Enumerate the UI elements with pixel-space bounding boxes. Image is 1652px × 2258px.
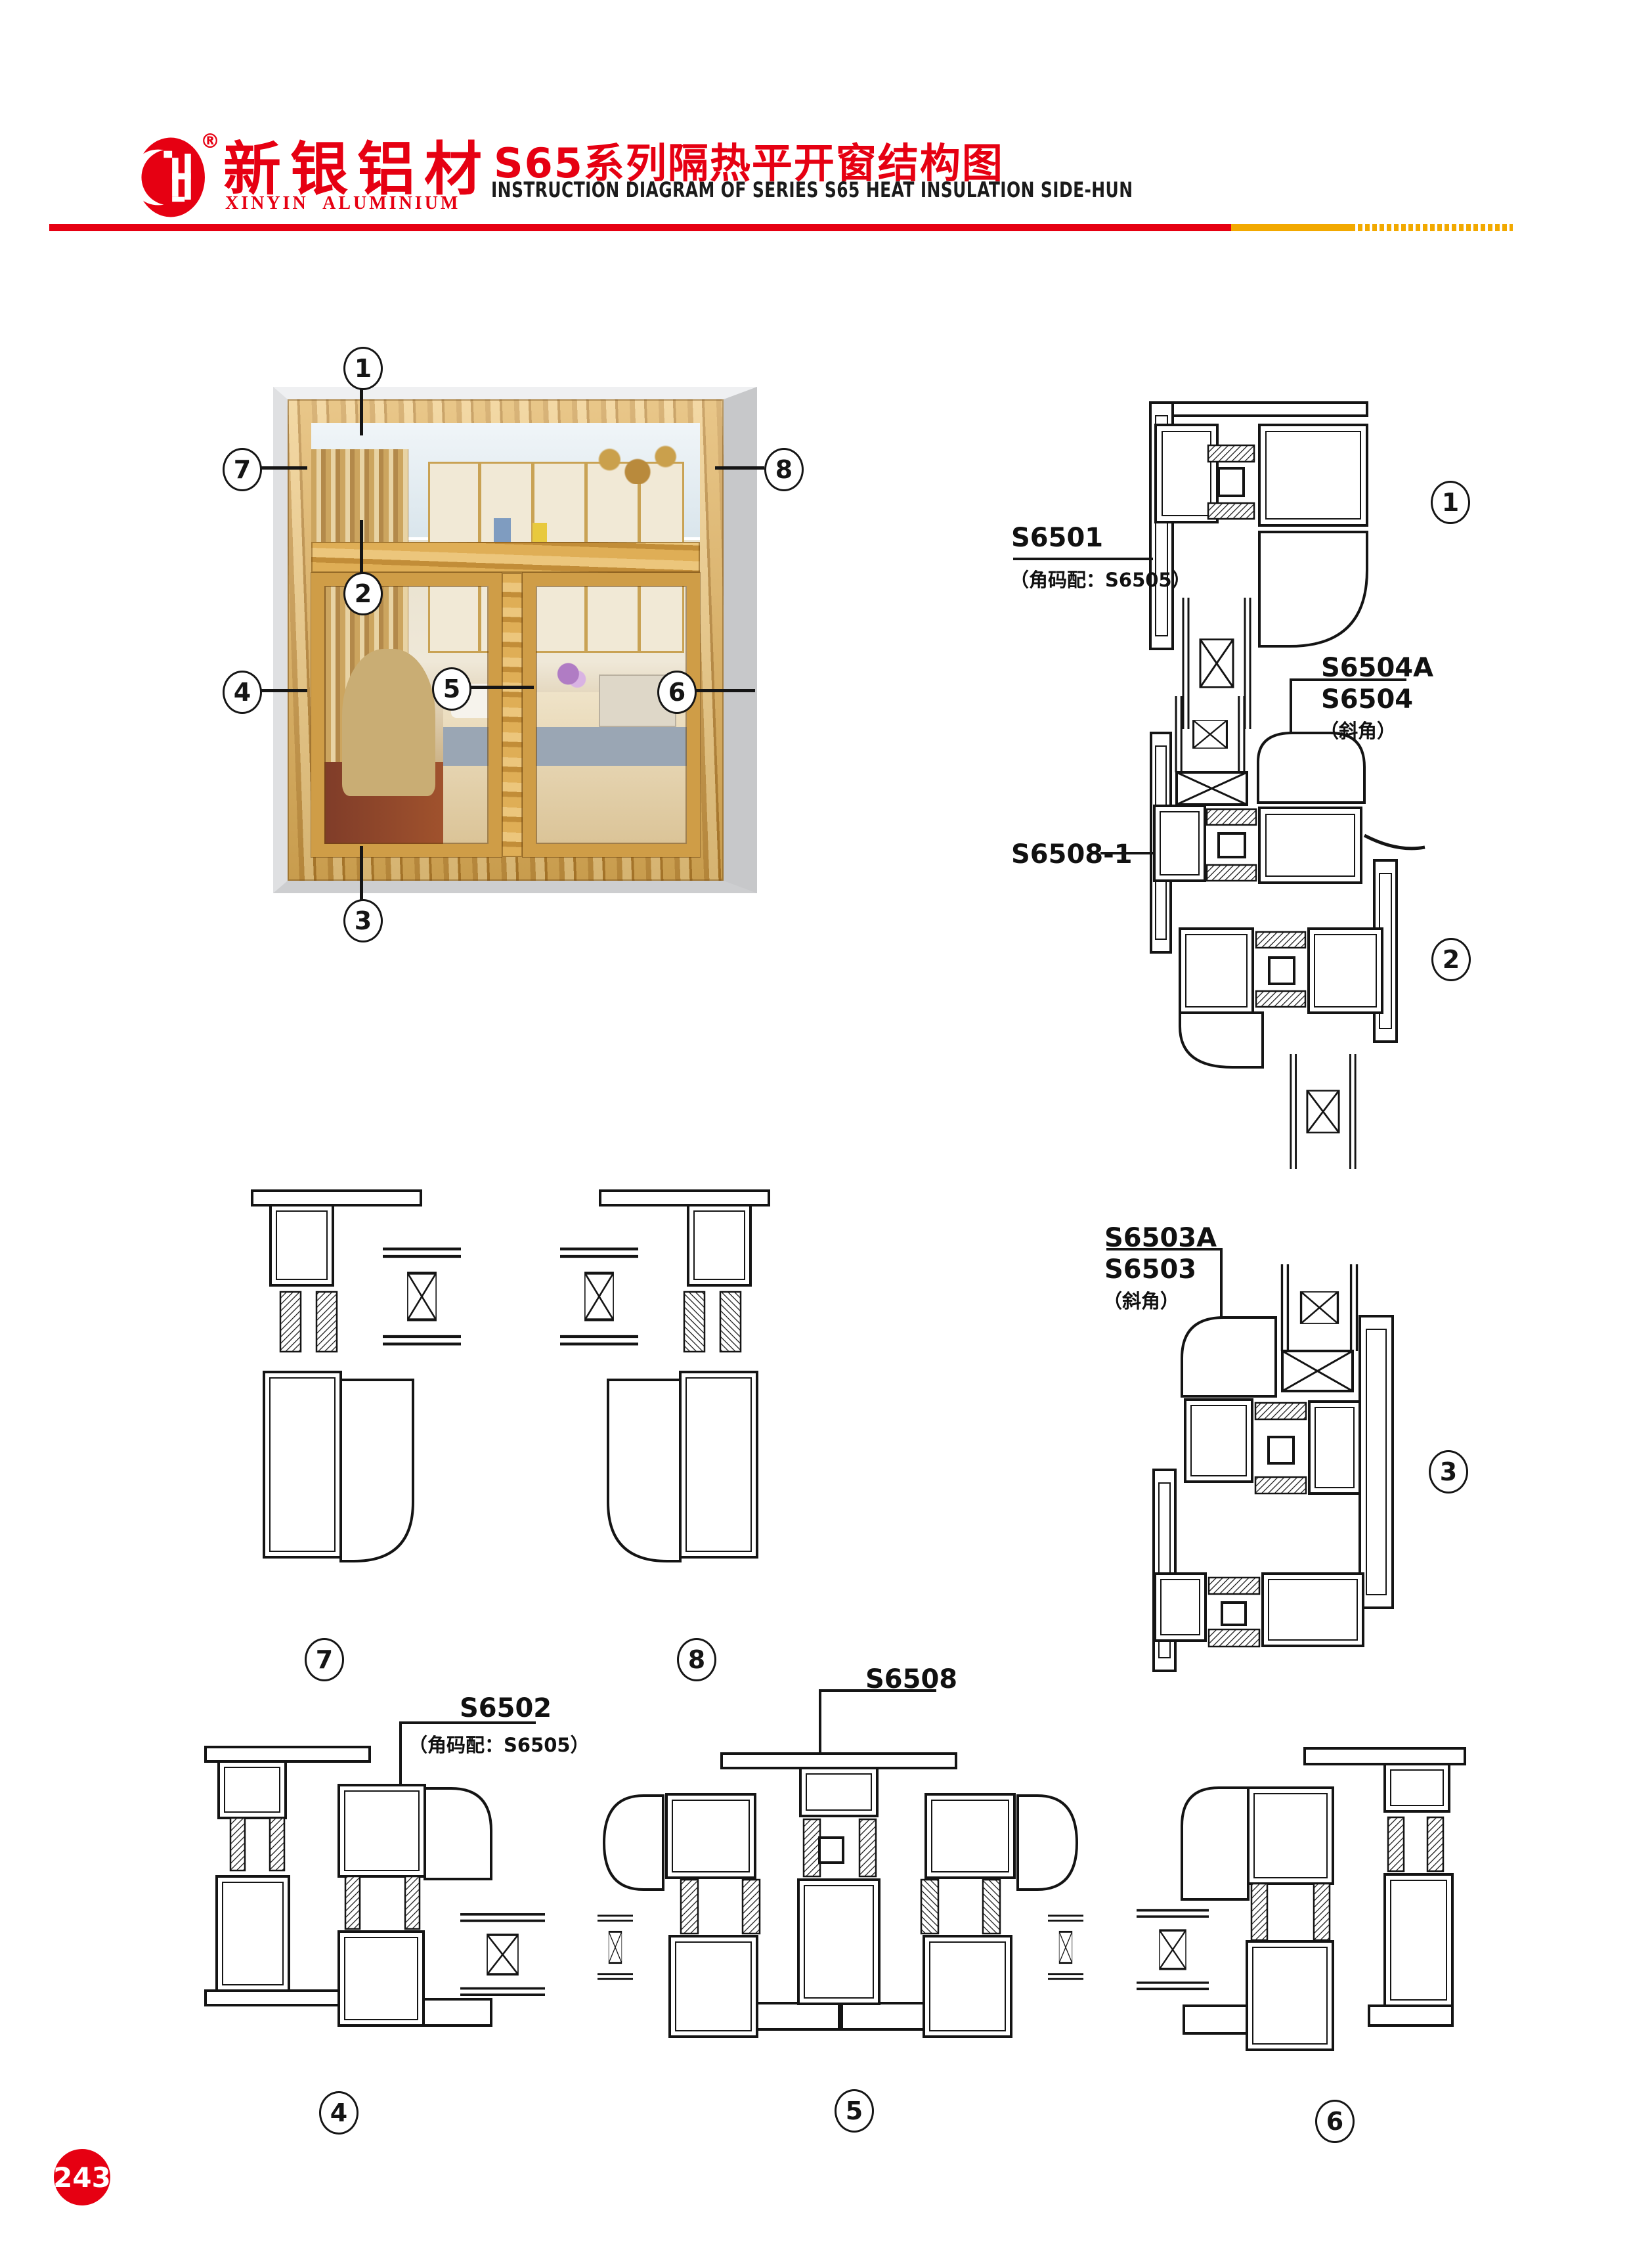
label-leader-s6503-v [1220, 1248, 1223, 1318]
callout-3: 3 [343, 899, 383, 942]
callout-8: 8 [764, 448, 804, 491]
registered-mark: ® [200, 130, 220, 153]
label-leader-s6508-1 [1100, 852, 1154, 854]
callout-1: 1 [343, 347, 383, 390]
callout-5: 5 [432, 667, 471, 711]
label-leader-s6502-v [399, 1721, 402, 1784]
leader-line-7 [259, 466, 307, 470]
header-rule-yellow [1231, 224, 1351, 231]
sash-bead-curve [1180, 1013, 1263, 1067]
profile-chambers [1156, 425, 1367, 525]
sash-bead-curve [1182, 1317, 1276, 1396]
section-1-number: 1 [1431, 481, 1470, 524]
leader-line-1 [360, 384, 363, 435]
label-leader-s6504-v [1290, 678, 1292, 734]
label-leader-s6502-h [399, 1721, 536, 1724]
section-4-number: 4 [319, 2091, 359, 2135]
page-subtitle: INSTRUCTION DIAGRAM OF SERIES S65 HEAT I… [491, 177, 1133, 202]
leader-line-2 [360, 520, 363, 574]
callout-2: 2 [343, 572, 383, 615]
section-8-number: 8 [677, 1638, 716, 1681]
sash-bead-curve [1182, 1788, 1248, 1899]
header-rule-red [49, 224, 1231, 231]
callout-4: 4 [223, 671, 262, 714]
page-number-badge: 243 [54, 2149, 110, 2205]
profile-label-s6501: S6501 [1011, 523, 1103, 553]
catalog-page: ® 新银铝材 XINYIN ALUMINIUM S65系列隔热平开窗结构图 IN… [0, 0, 1652, 2258]
section-2-number: 2 [1431, 938, 1471, 981]
header-rule-stripes [1351, 224, 1513, 231]
mullion-body [798, 1880, 879, 2004]
label-leader-s6504-h [1290, 678, 1406, 681]
section-5-drawing [598, 1675, 1083, 2056]
glass-indicator [1291, 1054, 1355, 1169]
mullion-bar [502, 573, 523, 857]
section-4-drawing [197, 1740, 552, 2049]
profile-label-s6504-sub: （斜角） [1320, 716, 1396, 743]
chandelier [591, 423, 684, 484]
left-casement-sash [311, 573, 502, 857]
profile-label-s6504: S6504 [1321, 684, 1413, 715]
profile-label-s6502: S6502 [460, 1693, 552, 1723]
brand-name-en: XINYIN ALUMINIUM [225, 193, 460, 214]
leader-line-4 [259, 689, 307, 692]
weather-strip [1364, 835, 1425, 849]
profile-label-s6502-sub: （角码配：S6505） [408, 1730, 590, 1758]
transom-bar [311, 542, 700, 573]
section-8-drawing [552, 1189, 775, 1570]
glass-indicator [460, 1915, 545, 1995]
label-leader-s6508-v [819, 1689, 821, 1755]
right-casement-sash [523, 573, 700, 857]
label-leader-s6501 [1013, 558, 1153, 560]
label-leader-s6503-h [1106, 1248, 1223, 1251]
section-2-drawing [1142, 650, 1458, 1169]
section-3-drawing [1142, 1248, 1418, 1681]
profile-label-s6503: S6503 [1104, 1254, 1196, 1285]
profile-label-s6501-sub: （角码配：S6505） [1010, 565, 1191, 592]
profile-label-s6508-1: S6508-1 [1011, 839, 1133, 870]
section-7-drawing [246, 1189, 469, 1570]
leader-line-6 [693, 689, 755, 692]
label-leader-s6508-h [819, 1689, 936, 1692]
section-5-number: 5 [835, 2089, 874, 2133]
section-7-number: 7 [305, 1638, 344, 1681]
profile-label-s6503-sub: （斜角） [1103, 1286, 1179, 1314]
callout-6: 6 [657, 671, 697, 714]
sash-bead-curve [1259, 532, 1367, 646]
leader-line-5 [468, 686, 534, 689]
window-illustration [273, 387, 757, 893]
callout-7: 7 [223, 448, 262, 491]
leader-line-8 [715, 466, 764, 470]
glass-indicator [1176, 696, 1244, 772]
section-6-drawing [1129, 1740, 1471, 2062]
section-3-number: 3 [1429, 1450, 1468, 1494]
glass-indicator [1282, 1264, 1357, 1351]
section-6-number: 6 [1315, 2100, 1355, 2143]
glass-indicator [1137, 1911, 1209, 1989]
leader-line-3 [360, 846, 363, 901]
sash-bead-curve [425, 1788, 491, 1879]
brand-name-cn: 新银铝材 [223, 141, 491, 198]
